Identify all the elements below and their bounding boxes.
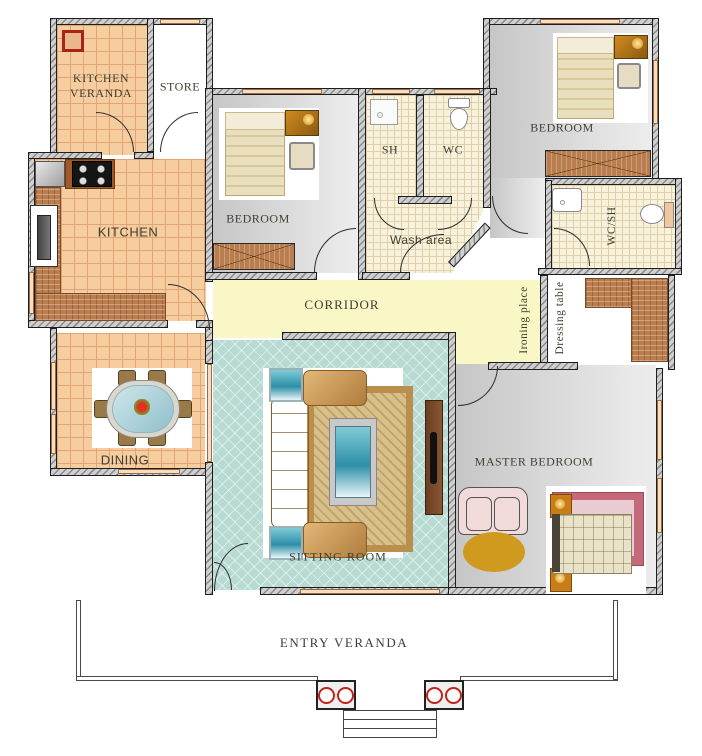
window xyxy=(242,89,322,94)
label-store: STORE xyxy=(160,80,200,95)
washbasin-icon xyxy=(552,188,582,212)
wardrobe-icon xyxy=(213,243,295,270)
wall xyxy=(134,152,154,159)
wall xyxy=(545,180,552,272)
wall xyxy=(362,272,410,280)
label-dressing: Dressing table xyxy=(554,281,566,354)
wall xyxy=(205,272,317,280)
steps-icon xyxy=(343,710,437,738)
wall xyxy=(448,332,456,595)
wall xyxy=(488,362,578,370)
wall xyxy=(28,152,102,159)
label-kitchen-veranda: KITCHEN VERANDA xyxy=(58,71,144,101)
bed-icon xyxy=(553,33,648,123)
pillar-icon xyxy=(316,680,356,710)
toilet-icon xyxy=(640,204,664,224)
window xyxy=(372,89,410,94)
washbasin-drain-icon xyxy=(560,200,565,205)
window xyxy=(29,272,34,314)
window xyxy=(434,89,480,94)
wall xyxy=(358,88,366,280)
window xyxy=(51,414,56,454)
wall xyxy=(540,275,548,370)
label-master: MASTER BEDROOM xyxy=(475,455,594,470)
wall xyxy=(545,178,682,185)
coffee-table-icon xyxy=(335,426,371,498)
pillar-icon xyxy=(424,680,464,710)
wall xyxy=(483,88,491,208)
wall xyxy=(205,462,213,595)
window xyxy=(657,478,662,533)
armchair-icon xyxy=(303,370,367,406)
wall xyxy=(50,18,57,159)
kitchen-counter xyxy=(35,293,166,321)
window xyxy=(51,362,56,410)
label-sitting: SITTING ROOM xyxy=(289,550,387,565)
label-wash-area: Wash area xyxy=(390,233,452,247)
label-dining: DINING xyxy=(101,453,150,468)
wall xyxy=(538,268,682,275)
side-table-icon xyxy=(269,368,303,402)
floor-plan: KITCHEN VERANDA STORE KITCHEN BEDROOM SH… xyxy=(0,0,702,756)
tv-icon xyxy=(430,432,437,484)
window xyxy=(160,19,200,24)
window xyxy=(207,364,212,462)
wall xyxy=(147,18,154,152)
dressing-counter xyxy=(631,278,668,362)
wall xyxy=(416,95,424,199)
wardrobe-icon xyxy=(545,150,651,177)
window xyxy=(657,400,662,460)
label-ironing: Ironing place xyxy=(518,286,530,354)
label-sh: SH xyxy=(382,143,398,158)
label-corridor: CORRIDOR xyxy=(304,297,379,313)
flower-centerpiece-icon xyxy=(134,399,150,415)
wall xyxy=(483,18,490,95)
shower-tray-icon xyxy=(370,99,398,125)
sink-icon xyxy=(35,161,65,187)
label-entry: ENTRY VERANDA xyxy=(280,635,408,651)
veranda-rail xyxy=(460,676,618,681)
loveseat-icon xyxy=(466,497,492,531)
sofa-icon xyxy=(271,398,309,528)
veranda-rail xyxy=(613,600,618,680)
label-wc: WC xyxy=(443,143,463,158)
ottoman-icon xyxy=(463,532,525,572)
window xyxy=(540,19,620,24)
wall xyxy=(28,320,168,328)
wall xyxy=(205,340,213,364)
toilet-icon xyxy=(664,202,674,228)
dining-table-icon xyxy=(92,368,192,448)
sofa-set xyxy=(263,368,403,558)
bed-icon xyxy=(219,108,319,200)
label-bedroom-right: BEDROOM xyxy=(530,121,594,136)
fridge-icon xyxy=(37,215,51,260)
wall xyxy=(282,332,454,340)
master-bed xyxy=(546,486,646,594)
veranda-rail xyxy=(76,600,81,680)
shower-drain-icon xyxy=(377,112,383,118)
window xyxy=(300,589,440,594)
wall xyxy=(675,178,682,275)
label-wc-sh: WC/SH xyxy=(606,207,618,246)
window xyxy=(653,60,658,124)
bed-icon xyxy=(552,514,632,574)
toilet-icon xyxy=(448,98,470,108)
floor-drain-icon xyxy=(62,30,84,52)
label-bedroom-center: BEDROOM xyxy=(226,212,290,227)
veranda-rail xyxy=(76,676,318,681)
loveseat-icon xyxy=(494,497,520,531)
wall xyxy=(206,18,213,95)
label-kitchen: KITCHEN xyxy=(98,225,159,240)
stove-icon xyxy=(72,161,112,187)
wall xyxy=(668,275,675,370)
window xyxy=(118,469,180,474)
wall xyxy=(205,88,213,282)
